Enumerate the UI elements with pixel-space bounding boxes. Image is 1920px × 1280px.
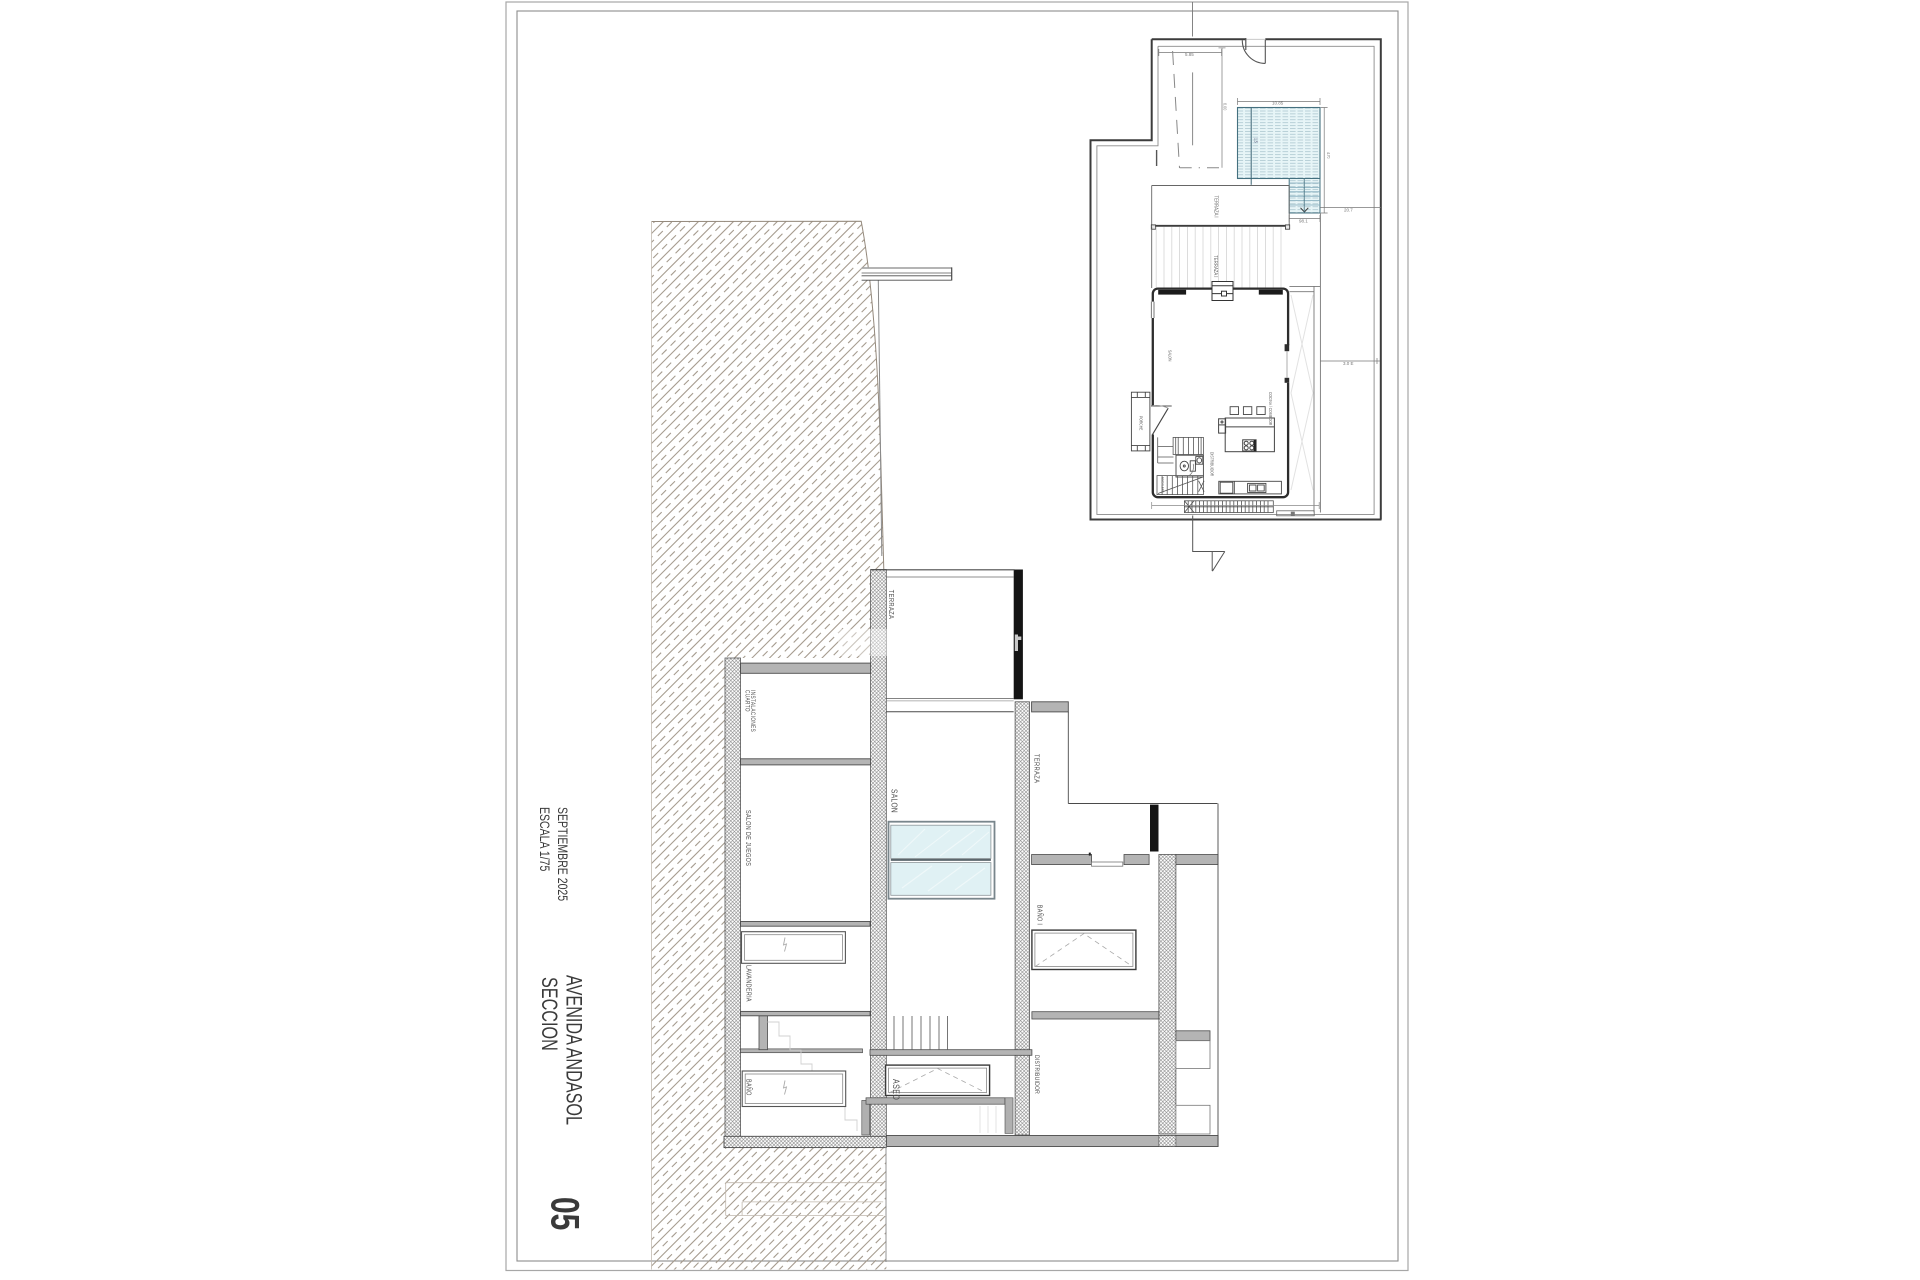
svg-text:TERRAZA I: TERRAZA I [1212, 196, 1219, 218]
svg-text:98.1: 98.1 [1299, 219, 1308, 224]
svg-text:TERRAZA: TERRAZA [1032, 754, 1040, 784]
svg-text:ASEO: ASEO [891, 1079, 901, 1100]
svg-text:10.85: 10.85 [1272, 101, 1284, 106]
svg-text:20.7: 20.7 [1344, 208, 1353, 213]
svg-text:BAÑO: BAÑO [744, 1079, 754, 1096]
svg-text:SECCION: SECCION [536, 977, 561, 1051]
svg-text:LAVANDERIA: LAVANDERIA [744, 965, 752, 1002]
svg-text:SEPTIEMBRE 2025: SEPTIEMBRE 2025 [555, 807, 571, 901]
svg-text:ESCALERA: ESCALERA [1160, 477, 1165, 493]
svg-text:ESCALA 1/75: ESCALA 1/75 [537, 807, 553, 872]
svg-text:SALON DE JUEGOS: SALON DE JUEGOS [744, 810, 752, 866]
svg-text:1.5: 1.5 [1253, 138, 1259, 143]
svg-text:DISTRIBUIDOR: DISTRIBUIDOR [1209, 452, 1215, 476]
svg-text:3.0 E: 3.0 E [1343, 361, 1354, 366]
svg-text:PORCHE: PORCHE [1138, 416, 1144, 431]
svg-text:6.00: 6.00 [1222, 103, 1228, 111]
svg-text:TERRAZA I: TERRAZA I [1212, 255, 1219, 277]
svg-text:INSTALACIONES: INSTALACIONES [749, 690, 756, 732]
svg-text:05: 05 [542, 1197, 586, 1230]
svg-text:5.85: 5.85 [1185, 52, 1194, 57]
svg-text:4.70: 4.70 [1326, 152, 1332, 159]
svg-text:TERRAZA: TERRAZA [887, 590, 895, 620]
svg-text:SALON: SALON [889, 789, 899, 813]
svg-text:SALON: SALON [1167, 350, 1173, 362]
svg-text:COCINA / COMEDOR: COCINA / COMEDOR [1268, 392, 1274, 425]
svg-text:AVENIDA ANDASOL: AVENIDA ANDASOL [561, 975, 586, 1125]
svg-text:DISTRIBUIDOR: DISTRIBUIDOR [1033, 1055, 1040, 1094]
svg-text:BAÑO I: BAÑO I [1035, 905, 1045, 925]
